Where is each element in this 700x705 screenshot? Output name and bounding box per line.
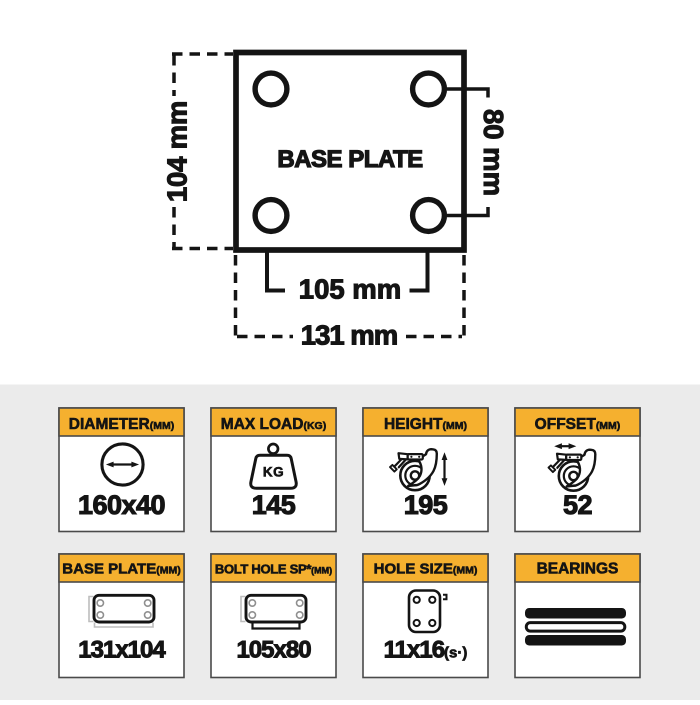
- svg-text:145: 145: [252, 490, 296, 520]
- svg-text:104 mm: 104 mm: [162, 101, 193, 202]
- svg-text:131x104: 131x104: [78, 637, 166, 664]
- svg-text:105 mm: 105 mm: [299, 274, 401, 305]
- svg-text:BEARINGS: BEARINGS: [537, 561, 619, 578]
- svg-text:131 mm: 131 mm: [301, 320, 397, 351]
- svg-text:BASE PLATE: BASE PLATE: [277, 146, 423, 173]
- svg-text:KG: KG: [263, 465, 284, 480]
- svg-text:195: 195: [404, 490, 448, 520]
- svg-text:105x80: 105x80: [236, 637, 311, 664]
- svg-text:160x40: 160x40: [78, 490, 165, 520]
- svg-text:52: 52: [563, 490, 592, 520]
- svg-text:80 mm: 80 mm: [478, 109, 509, 196]
